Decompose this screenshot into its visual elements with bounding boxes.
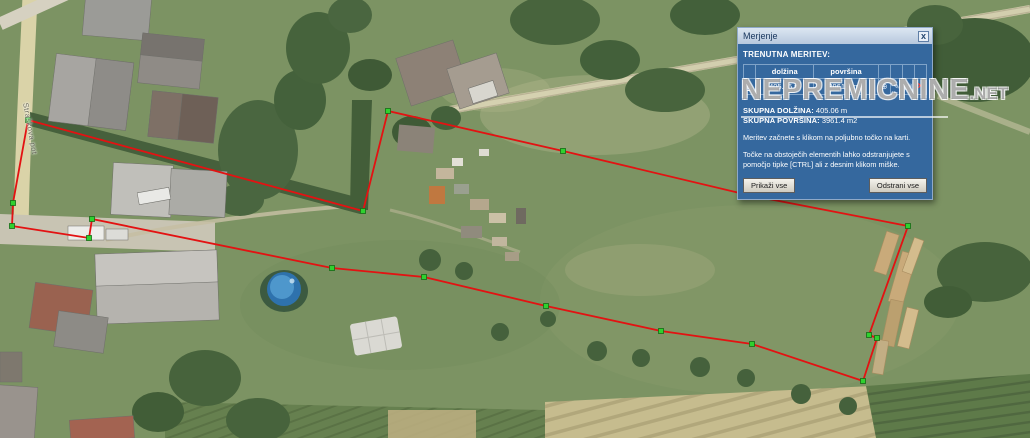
measurement-vertex[interactable] [422,275,427,280]
remove-all-button[interactable]: Odstrani vse [869,178,927,193]
details-icon[interactable]: ▤ [903,80,914,93]
col-header-num [744,65,756,79]
measurement-vertex[interactable] [11,201,16,206]
row-length-value: 405.06 m [756,79,814,95]
total-area-value: 3961.4 m2 [822,116,857,125]
measurement-vertex[interactable] [90,217,95,222]
measurement-vertex[interactable] [10,224,15,229]
help-text-1: Meritev začnete s klikom na poljubno toč… [743,133,927,142]
measurement-vertex[interactable] [361,209,366,214]
measurement-vertex[interactable] [867,333,872,338]
total-length-label: SKUPNA DOLŽINA: [743,106,814,115]
row-area-value: 3961.4 m2 [814,79,878,95]
panel-title: Merjenje [743,31,778,41]
delete-icon[interactable]: × [915,80,926,93]
table-row: 1 405.06 m 3961.4 m2 ⊕ ✎ ▤ × [744,79,927,95]
show-all-button[interactable]: Prikaži vse [743,178,795,193]
measurement-table: dolžina površina 1 405.06 m 3961.4 m2 ⊕ … [743,64,927,95]
measurement-vertex[interactable] [861,379,866,384]
edit-icon[interactable]: ✎ [891,80,902,93]
help-text-2: Točke na obstoječih elementih lahko odst… [743,150,927,169]
close-icon[interactable]: x [918,31,929,42]
measurement-vertex[interactable] [659,329,664,334]
row-number-link[interactable]: 1 [747,82,751,91]
measurement-vertex[interactable] [386,109,391,114]
screen: Straškova pot Merjenje x TRENUTNA MERITE… [0,0,1030,438]
total-area-label: SKUPNA POVRŠINA: [743,116,820,125]
measure-panel: Merjenje x TRENUTNA MERITEV: dolžina pov… [737,27,933,200]
measurement-vertex[interactable] [875,336,880,341]
col-header-povrsina: površina [814,65,878,79]
zoom-to-icon[interactable]: ⊕ [879,80,890,93]
measurement-vertex[interactable] [330,266,335,271]
total-length-value: 405.06 m [816,106,847,115]
measurement-vertex[interactable] [87,236,92,241]
panel-titlebar[interactable]: Merjenje x [738,28,932,44]
measurement-vertex[interactable] [561,149,566,154]
measurement-vertex[interactable] [544,304,549,309]
col-header-dolzina: dolžina [756,65,814,79]
totals: SKUPNA DOLŽINA: 405.06 m SKUPNA POVRŠINA… [743,106,927,125]
section-title: TRENUTNA MERITEV: [743,50,927,59]
measurement-vertex[interactable] [750,342,755,347]
measurement-vertex[interactable] [906,224,911,229]
